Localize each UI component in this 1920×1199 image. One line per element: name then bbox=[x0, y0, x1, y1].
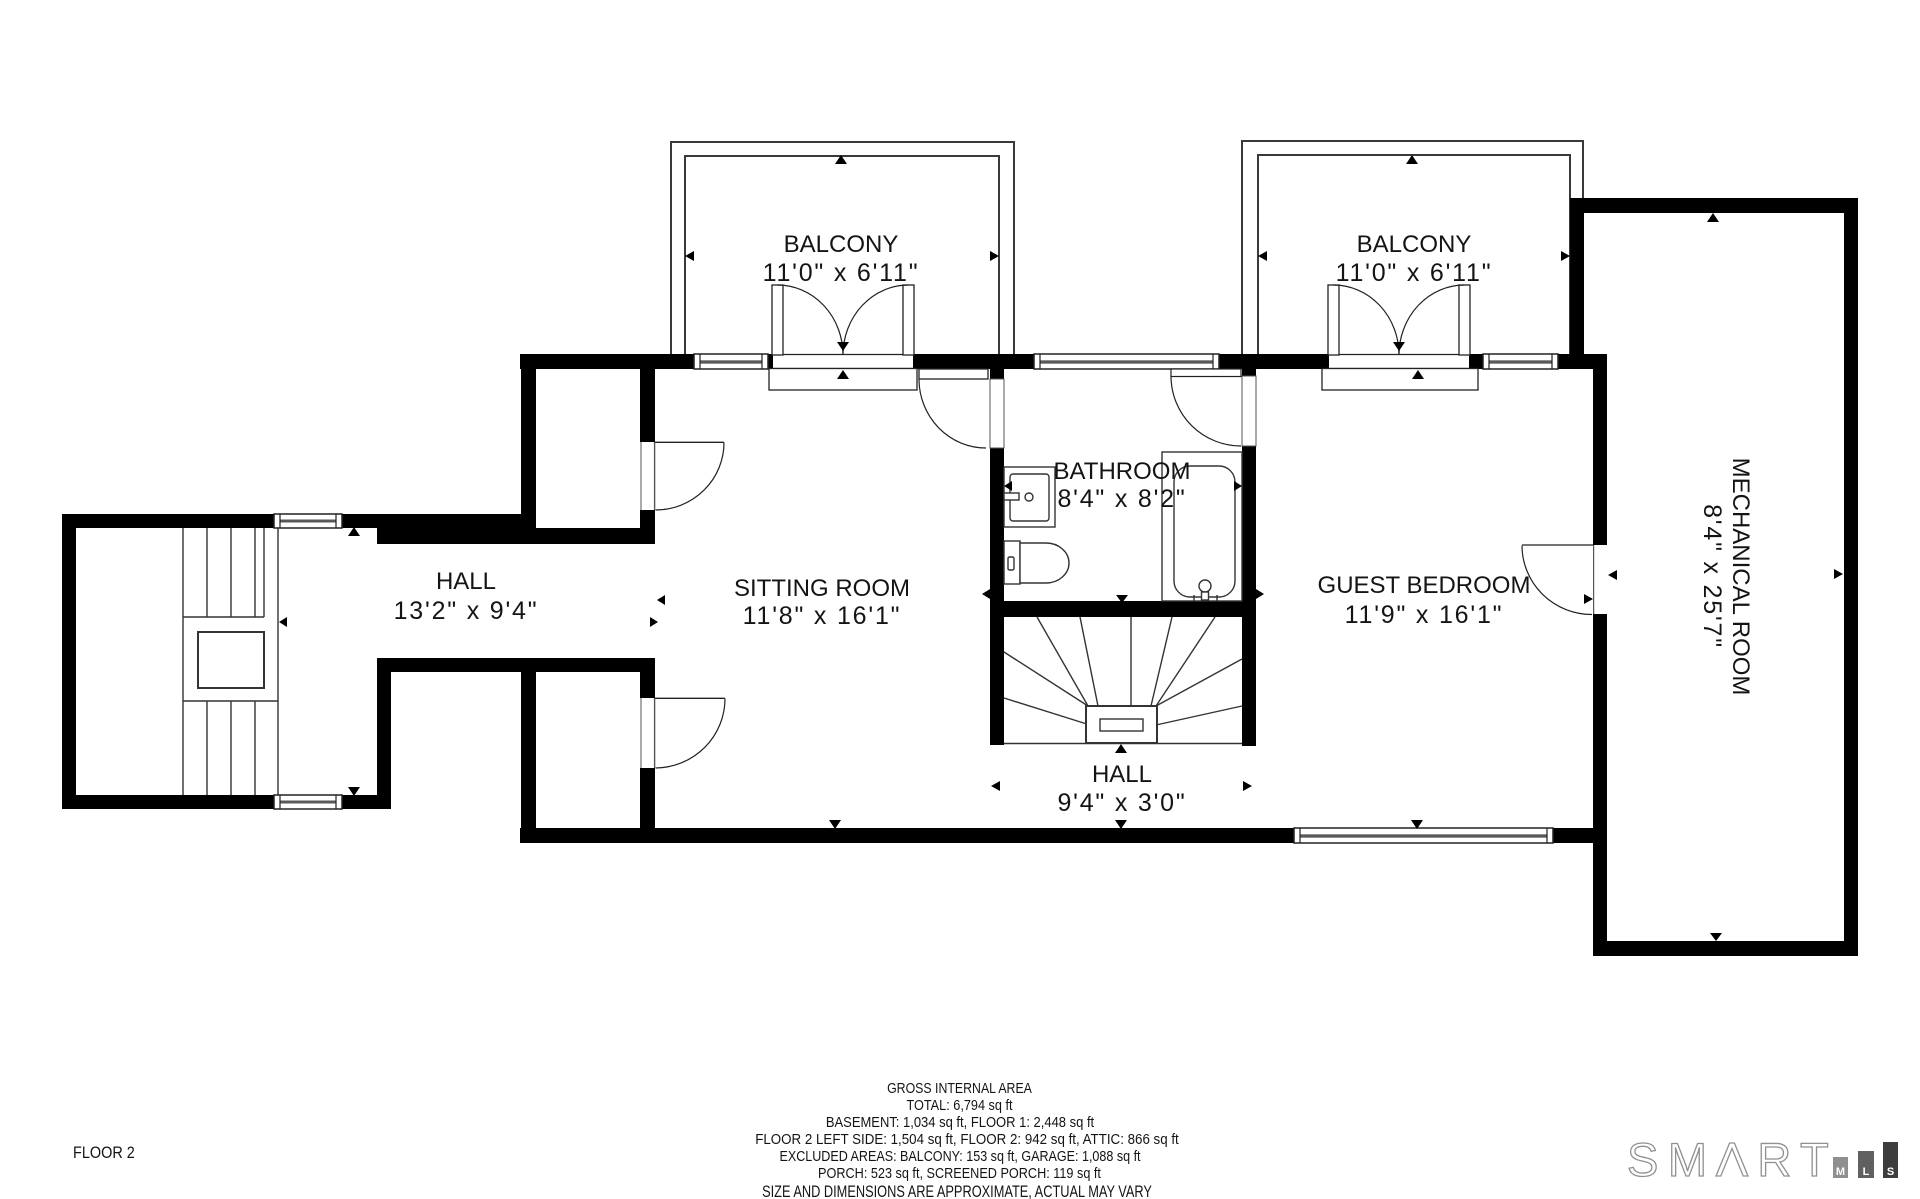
svg-text:BATHROOM: BATHROOM bbox=[1054, 458, 1191, 485]
svg-text:PORCH: 523 sq ft, SCREENED POR: PORCH: 523 sq ft, SCREENED PORCH: 119 sq… bbox=[818, 1165, 1101, 1181]
svg-text:BALCONY: BALCONY bbox=[1357, 231, 1472, 258]
svg-text:L: L bbox=[1863, 1166, 1870, 1178]
svg-text:FLOOR 2 LEFT SIDE: 1,504 sq ft: FLOOR 2 LEFT SIDE: 1,504 sq ft, FLOOR 2:… bbox=[755, 1130, 1179, 1147]
svg-text:TOTAL: 6,794 sq ft: TOTAL: 6,794 sq ft bbox=[906, 1097, 1012, 1113]
svg-text:HALL: HALL bbox=[436, 568, 496, 595]
svg-text:8'4" x 25'7": 8'4" x 25'7" bbox=[1698, 504, 1726, 649]
svg-text:GUEST BEDROOM: GUEST BEDROOM bbox=[1318, 572, 1531, 599]
svg-text:13'2" x 9'4": 13'2" x 9'4" bbox=[394, 597, 539, 625]
svg-text:BALCONY: BALCONY bbox=[784, 231, 899, 258]
svg-text:11'8" x 16'1": 11'8" x 16'1" bbox=[743, 602, 902, 630]
svg-text:11'0" x 6'11": 11'0" x 6'11" bbox=[1336, 259, 1493, 287]
svg-text:GROSS INTERNAL AREA: GROSS INTERNAL AREA bbox=[887, 1080, 1032, 1096]
svg-text:HALL: HALL bbox=[1092, 761, 1152, 788]
svg-text:EXCLUDED AREAS: BALCONY: 153 s: EXCLUDED AREAS: BALCONY: 153 sq ft, GARA… bbox=[779, 1148, 1140, 1164]
svg-text:9'4" x 3'0": 9'4" x 3'0" bbox=[1057, 789, 1186, 817]
svg-text:M: M bbox=[1836, 1166, 1845, 1178]
svg-text:FLOOR 2: FLOOR 2 bbox=[73, 1144, 135, 1162]
svg-text:MECHANICAL ROOM: MECHANICAL ROOM bbox=[1727, 458, 1754, 696]
svg-text:BASEMENT: 1,034 sq ft, FLOOR 1: BASEMENT: 1,034 sq ft, FLOOR 1: 2,448 sq… bbox=[826, 1114, 1094, 1130]
svg-text:S: S bbox=[1887, 1166, 1894, 1178]
svg-text:SIZE AND DIMENSIONS ARE APPROX: SIZE AND DIMENSIONS ARE APPROXIMATE, ACT… bbox=[762, 1182, 1152, 1199]
svg-text:8'4" x 8'2": 8'4" x 8'2" bbox=[1057, 485, 1186, 513]
svg-text:SITTING ROOM: SITTING ROOM bbox=[734, 575, 910, 602]
svg-text:11'0" x 6'11": 11'0" x 6'11" bbox=[763, 259, 920, 287]
svg-text:11'9" x 16'1": 11'9" x 16'1" bbox=[1345, 601, 1504, 629]
